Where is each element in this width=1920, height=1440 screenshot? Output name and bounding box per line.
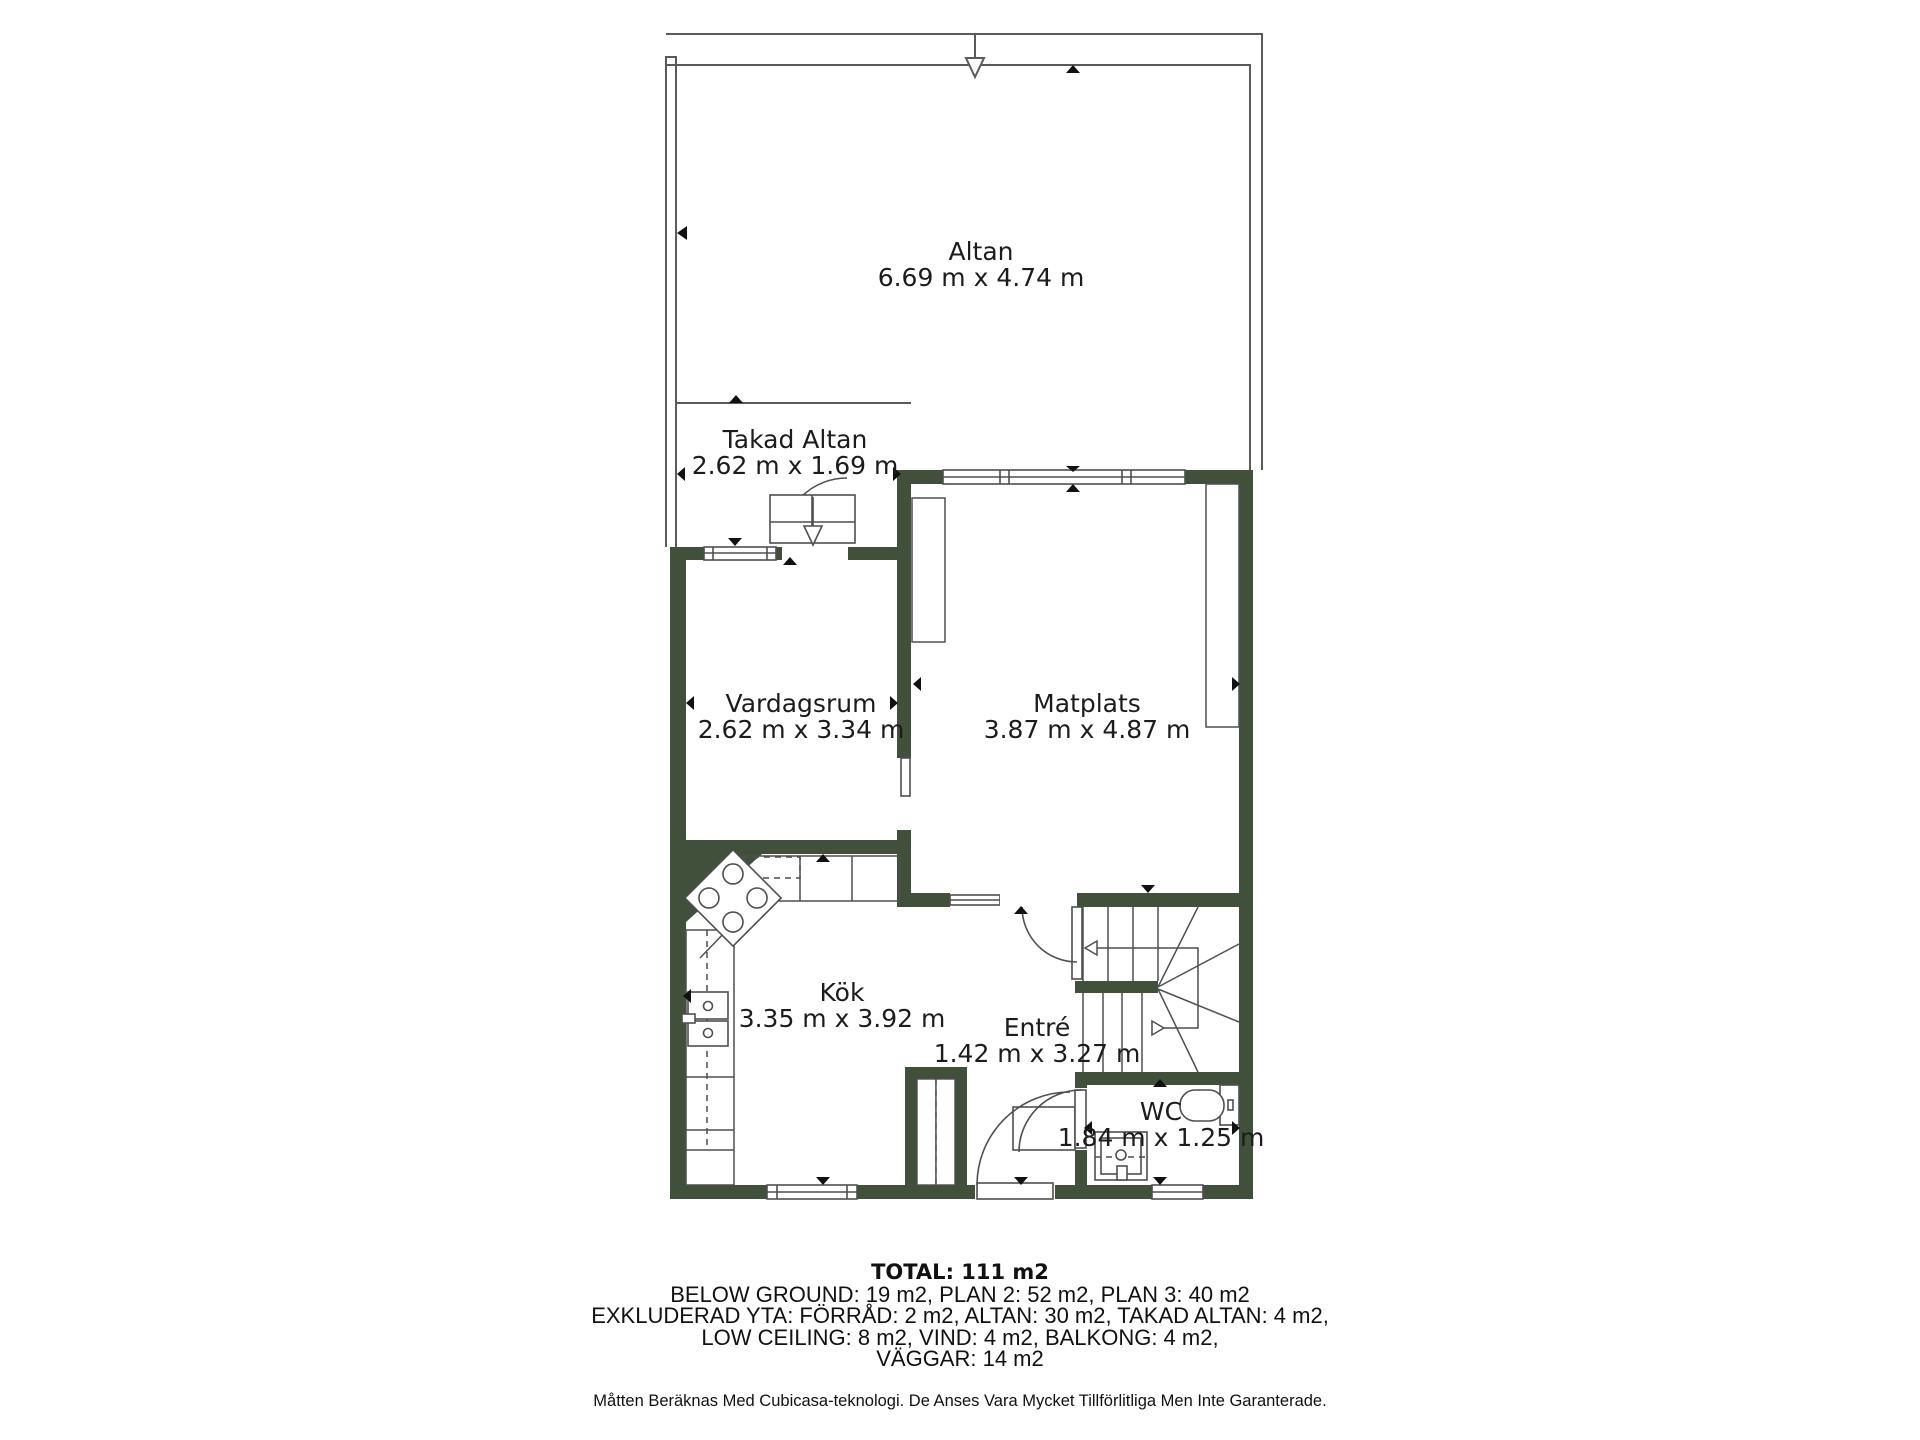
- room-name: Takad Altan: [692, 427, 899, 453]
- closet: [917, 1079, 955, 1185]
- room-label-takad-altan: Takad Altan 2.62 m x 1.69 m: [692, 427, 899, 479]
- summary-line: LOW CEILING: 8 m2, VIND: 4 m2, BALKONG: …: [0, 1327, 1920, 1349]
- room-dims: 3.87 m x 4.87 m: [984, 717, 1191, 743]
- room-name: Vardagsrum: [698, 691, 905, 717]
- room-dims: 6.69 m x 4.74 m: [878, 265, 1085, 291]
- summary-line: EXKLUDERAD YTA: FÖRRÅD: 2 m2, ALTAN: 30 …: [0, 1305, 1920, 1327]
- room-name: Altan: [878, 239, 1085, 265]
- room-label-kok: Kök 3.35 m x 3.92 m: [739, 980, 946, 1032]
- floor-plan-drawing: [0, 0, 1920, 1440]
- room-label-altan: Altan 6.69 m x 4.74 m: [878, 239, 1085, 291]
- disclaimer-text: Måtten Beräknas Med Cubicasa-teknologi. …: [0, 1391, 1920, 1413]
- room-label-wc: WC 1.84 m x 1.25 m: [1058, 1099, 1265, 1151]
- summary-block: TOTAL: 111 m2 BELOW GROUND: 19 m2, PLAN …: [0, 1262, 1920, 1413]
- room-dims: 3.35 m x 3.92 m: [739, 1006, 946, 1032]
- room-dims: 1.84 m x 1.25 m: [1058, 1125, 1265, 1151]
- summary-line: BELOW GROUND: 19 m2, PLAN 2: 52 m2, PLAN…: [0, 1284, 1920, 1306]
- room-label-vardagsrum: Vardagsrum 2.62 m x 3.34 m: [698, 691, 905, 743]
- room-dims: 1.42 m x 3.27 m: [934, 1041, 1141, 1067]
- deck-entrance-arrow-icon: [966, 34, 984, 77]
- room-name: Kök: [739, 980, 946, 1006]
- room-name: Entré: [934, 1015, 1141, 1041]
- walls-layer: [670, 470, 1253, 1199]
- floor-plan-page: Altan 6.69 m x 4.74 m Takad Altan 2.62 m…: [0, 0, 1920, 1440]
- room-name: WC: [1058, 1099, 1265, 1125]
- room-dims: 2.62 m x 1.69 m: [692, 453, 899, 479]
- room-dims: 2.62 m x 3.34 m: [698, 717, 905, 743]
- room-name: Matplats: [984, 691, 1191, 717]
- room-label-matplats: Matplats 3.87 m x 4.87 m: [984, 691, 1191, 743]
- room-label-entre: Entré 1.42 m x 3.27 m: [934, 1015, 1141, 1067]
- summary-line: VÄGGAR: 14 m2: [0, 1348, 1920, 1370]
- total-area: TOTAL: 111 m2: [0, 1262, 1920, 1284]
